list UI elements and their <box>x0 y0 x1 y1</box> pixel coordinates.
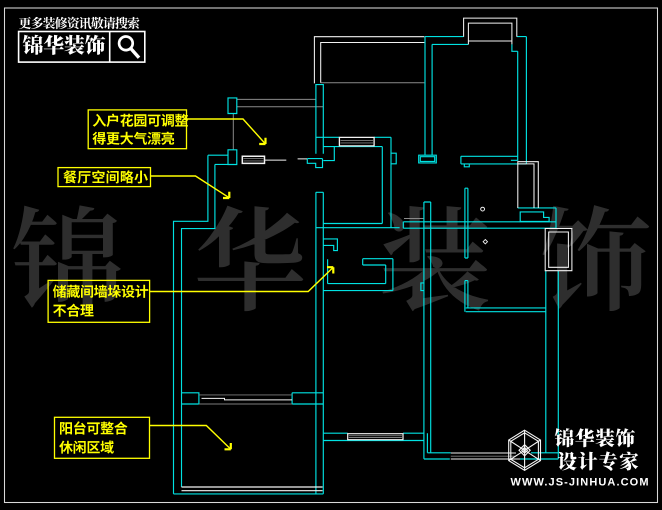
svg-text:WWW.JS-JINHUA.COM: WWW.JS-JINHUA.COM <box>511 477 650 489</box>
